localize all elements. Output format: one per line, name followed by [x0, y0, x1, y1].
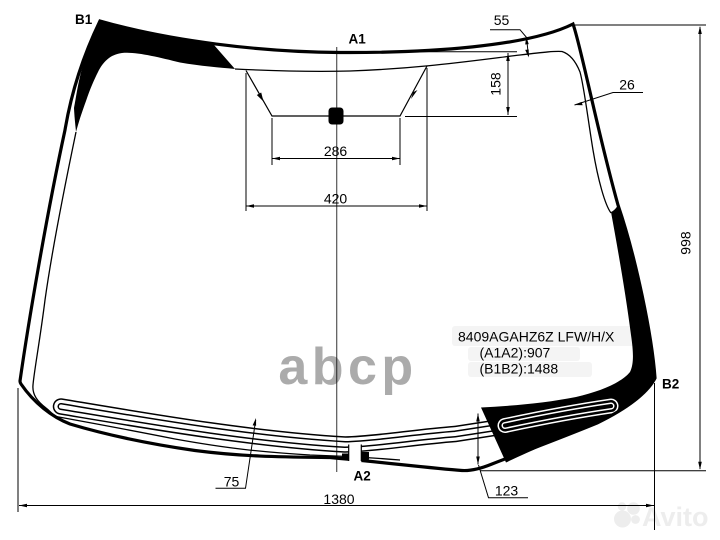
svg-text:B1: B1 — [75, 12, 93, 27]
svg-text:(B1B2):1488: (B1B2):1488 — [480, 361, 559, 377]
svg-text:1380: 1380 — [323, 491, 354, 507]
svg-text:286: 286 — [324, 143, 348, 159]
svg-text:B2: B2 — [662, 377, 679, 392]
svg-text:158: 158 — [488, 72, 504, 96]
svg-text:123: 123 — [495, 483, 519, 499]
svg-text:Avito: Avito — [642, 502, 709, 532]
svg-text:420: 420 — [324, 191, 348, 207]
svg-text:8409AGAHZ6Z LFW/H/X: 8409AGAHZ6Z LFW/H/X — [458, 329, 615, 345]
svg-text:(A1A2):907: (A1A2):907 — [480, 345, 551, 361]
svg-text:998: 998 — [678, 231, 694, 255]
svg-text:A2: A2 — [354, 469, 371, 484]
svg-text:A1: A1 — [349, 32, 367, 47]
svg-text:75: 75 — [224, 474, 240, 490]
svg-text:26: 26 — [619, 77, 635, 93]
svg-text:abcp: abcp — [278, 338, 417, 396]
svg-text:55: 55 — [494, 12, 510, 28]
